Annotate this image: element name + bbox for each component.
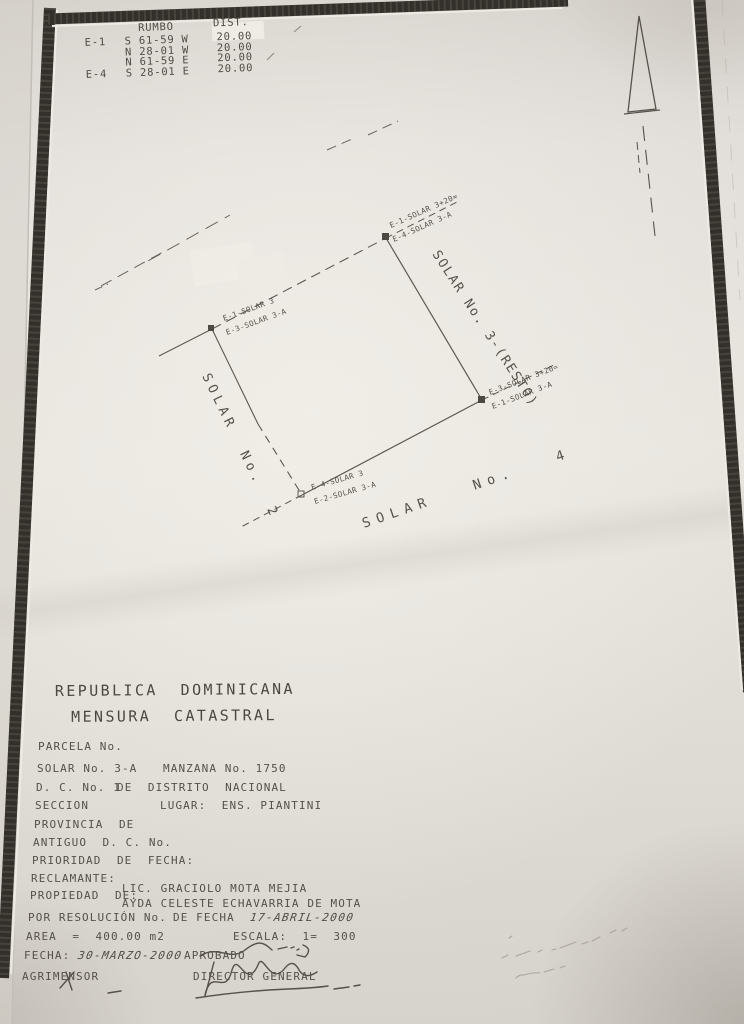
field-solar-row: SOLAR No. 3-A MANZANA No. 1750 (37, 762, 137, 775)
document-border-frame (3, 0, 744, 978)
country-title: REPUBLICA DOMINICANA (55, 680, 295, 700)
field-aprobado: APROBADO (184, 949, 246, 962)
owner-name-1: LIC. GRACIOLO MOTA MEJIA (122, 882, 307, 895)
corner-right-label-2: E-1-SOLAR 3-A (490, 380, 553, 411)
column-header-rumbo: RUMBO (138, 21, 174, 34)
field-area-row: AREA = 400.00 m2 ESCALA: 1= 300 (26, 930, 165, 943)
field-fecha-label: FECHA: (24, 949, 70, 962)
corner-bottom-label-2: E-2-SOLAR 3-A (313, 480, 377, 506)
field-firmas-row: AGRIMENSOR DIRECTOR GENERAL (22, 970, 99, 983)
field-reclamante: RECLAMANTE: (31, 872, 116, 885)
corner-top-label-2: E-4-SOLAR 3-A (391, 210, 453, 244)
adjacent-solar-labels: SOLAR No. 2 SOLAR No. 3-(RESTO) SOLAR No… (198, 248, 572, 532)
corner-left-label-1: E-1-SOLAR 3 (222, 296, 276, 323)
document-title: MENSURA CATASTRAL (71, 706, 295, 726)
survey-plan-canvas: E-1-SOLAR 3+20= E-4-SOLAR 3-A E-1-SOLAR … (0, 0, 744, 1024)
resolution-date-value: 17-ABRIL-2000 (249, 911, 355, 924)
station-cell: E-4 (86, 68, 108, 81)
adjacent-label-left: SOLAR No. 2 (198, 371, 282, 522)
field-resolucion-row: POR RESOLUCIÓN No. DE FECHA 17-ABRIL-200… (28, 911, 167, 924)
field-escala: ESCALA: 1= 300 (233, 930, 357, 943)
scanned-cadastral-survey-document: E-1-SOLAR 3+20= E-4-SOLAR 3-A E-1-SOLAR … (0, 0, 744, 1024)
corner-left-label-2: E-3-SOLAR 3-A (225, 307, 288, 337)
field-area: AREA = 400.00 m2 (26, 930, 165, 943)
corner-right-label-1: E-3-SOLAR 3+20= (487, 362, 559, 397)
page-edge (0, 0, 740, 1024)
field-fecha-row: FECHA: 30-MARZO-2000 APROBADO (24, 949, 70, 962)
field-dc-row: D. C. No. 1 DE DISTRITO NACIONAL (36, 781, 121, 794)
field-manzana: MANZANA No. 1750 (163, 762, 287, 775)
bearings-table: RUMBO DIST. E-1 S 61-59 W 20.00 N 28-01 … (82, 17, 294, 88)
dist-cell: 20.00 (217, 62, 253, 75)
field-seccion-row: SECCION LUGAR: ENS. PIANTINI (35, 799, 89, 812)
parcel-boundary (159, 201, 556, 527)
field-de-fecha: DE FECHA (173, 911, 235, 924)
corner-bottom-label-1: E-4-SOLAR 3 (310, 468, 364, 492)
title-block: REPUBLICA DOMINICANA MENSURA CATASTRAL (55, 680, 295, 726)
column-header-dist: DIST. (213, 16, 249, 29)
adjacent-label-bottom: SOLAR No. 4 (360, 445, 573, 532)
field-parcela: PARCELA No. (38, 740, 123, 753)
field-prioridad: PRIORIDAD DE FECHA: (32, 854, 194, 867)
field-distrito: DE DISTRITO NACIONAL (117, 781, 287, 794)
field-seccion: SECCION (35, 799, 89, 812)
field-antiguo-dc: ANTIGUO D. C. No. (33, 836, 172, 849)
corner-station-labels: E-1-SOLAR 3+20= E-4-SOLAR 3-A E-1-SOLAR … (222, 192, 560, 506)
field-propiedad-row: PROPIEDAD DE: LIC. GRACIOLO MOTA MEJIA A… (30, 889, 138, 902)
field-resolucion: POR RESOLUCIÓN No. (28, 911, 167, 924)
faint-pencil-scribbles (502, 928, 627, 978)
field-provincia: PROVINCIA DE (34, 818, 134, 831)
field-director-general: DIRECTOR GENERAL (193, 970, 317, 983)
field-lugar: LUGAR: ENS. PIANTINI (160, 799, 322, 812)
owner-name-2: AYDA CELESTE ECHAVARRIA DE MOTA (122, 897, 361, 910)
corner-top-label-1: E-1-SOLAR 3+20= (388, 192, 459, 230)
north-arrow-icon (624, 16, 660, 236)
fecha-value: 30-MARZO-2000 (77, 949, 183, 962)
field-dc: D. C. No. 1 (36, 781, 121, 794)
field-solar: SOLAR No. 3-A (37, 762, 137, 775)
field-agrimensor: AGRIMENSOR (22, 970, 99, 983)
rumbo-cell: S 28-01 E (126, 65, 190, 79)
adjacent-label-right: SOLAR No. 3-(RESTO) (429, 248, 541, 410)
